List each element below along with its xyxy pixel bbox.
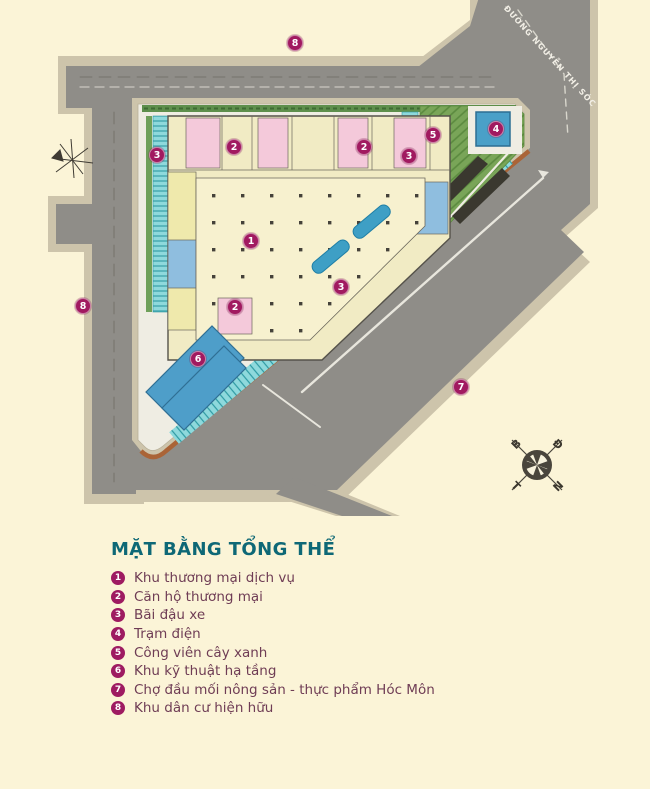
legend-item-6: 6Khu kỹ thuật hạ tầng: [111, 662, 591, 681]
room-pink: [258, 118, 288, 168]
legend-item-label: Chợ đầu mối nông sản - thực phẩm Hóc Môn: [134, 682, 435, 698]
column-dot: [299, 329, 302, 332]
column-dot: [241, 275, 244, 278]
legend-item-number: 5: [111, 646, 125, 660]
legend-item-3: 3Bãi đậu xe: [111, 606, 591, 625]
legend-item-5: 5Công viên cây xanh: [111, 643, 591, 662]
stub-road: [56, 204, 112, 244]
legend-item-number: 7: [111, 683, 125, 697]
column-dot: [415, 194, 418, 197]
legend-item-8: 8Khu dân cư hiện hữu: [111, 699, 591, 718]
column-dot: [270, 194, 273, 197]
column-dot: [212, 221, 215, 224]
legend-item-label: Khu kỹ thuật hạ tầng: [134, 663, 276, 679]
legend-list: 1Khu thương mại dịch vụ2Căn hộ thương mạ…: [111, 569, 591, 718]
legend-item-label: Trạm điện: [134, 626, 201, 642]
legend-item-number: 4: [111, 627, 125, 641]
column-dot: [270, 302, 273, 305]
column-dot: [299, 302, 302, 305]
sketch-arrowhead: [52, 150, 63, 161]
column-dot: [328, 221, 331, 224]
legend-item-2: 2Căn hộ thương mại: [111, 588, 591, 607]
legend-item-4: 4Trạm điện: [111, 625, 591, 644]
column-dot: [357, 275, 360, 278]
column-dot: [270, 248, 273, 251]
column-dot: [270, 329, 273, 332]
legend-item-label: Bãi đậu xe: [134, 607, 205, 623]
column-dot: [386, 221, 389, 224]
column-dot: [241, 194, 244, 197]
column-dot: [415, 221, 418, 224]
parking-strip-left: [153, 116, 169, 312]
room-blue: [168, 240, 196, 288]
legend-item-number: 8: [111, 701, 125, 715]
power-station-building: [476, 112, 510, 146]
page: { "colors": { "background": "#FBF4D7", "…: [0, 0, 650, 789]
column-dot: [328, 302, 331, 305]
legend-item-number: 1: [111, 571, 125, 585]
column-dot: [241, 221, 244, 224]
legend-title: MẶT BẰNG TỔNG THỂ: [111, 539, 591, 560]
column-dot: [241, 248, 244, 251]
legend-item-number: 3: [111, 608, 125, 622]
legend-item-7: 7Chợ đầu mối nông sản - thực phẩm Hóc Mô…: [111, 681, 591, 700]
column-dot: [299, 275, 302, 278]
column-dot: [212, 248, 215, 251]
compass: B Đ T N: [508, 436, 566, 494]
site-plan-svg: ĐƯỜNG NGUYỄN THỊ SÓC B Đ T N: [0, 0, 650, 520]
legend-item-label: Khu dân cư hiện hữu: [134, 700, 273, 716]
site-plan: ĐƯỜNG NGUYỄN THỊ SÓC B Đ T N 12223334567…: [0, 0, 650, 520]
column-dot: [328, 194, 331, 197]
room-pink-wing: [218, 298, 252, 334]
column-dot: [328, 275, 331, 278]
column-dot: [212, 275, 215, 278]
column-dot: [212, 194, 215, 197]
room-pink: [394, 118, 426, 168]
column-dot: [212, 302, 215, 305]
column-dot: [299, 194, 302, 197]
legend-item-1: 1Khu thương mại dịch vụ: [111, 569, 591, 588]
column-dot: [299, 221, 302, 224]
column-dot: [270, 275, 273, 278]
legend-item-label: Công viên cây xanh: [134, 645, 267, 661]
hedge-strip-left: [146, 116, 152, 312]
room-pink: [186, 118, 220, 168]
compass-label-t: T: [508, 479, 523, 494]
column-dot: [386, 248, 389, 251]
column-dot: [357, 248, 360, 251]
room-pink: [338, 118, 368, 168]
legend-item-label: Căn hộ thương mại: [134, 589, 263, 605]
column-dot: [357, 194, 360, 197]
legend-item-number: 2: [111, 590, 125, 604]
column-dot: [386, 194, 389, 197]
legend-item-label: Khu thương mại dịch vụ: [134, 570, 295, 586]
column-dot: [270, 221, 273, 224]
legend-item-number: 6: [111, 664, 125, 678]
column-dot: [299, 248, 302, 251]
legend: MẶT BẰNG TỔNG THỂ 1Khu thương mại dịch v…: [111, 539, 591, 718]
